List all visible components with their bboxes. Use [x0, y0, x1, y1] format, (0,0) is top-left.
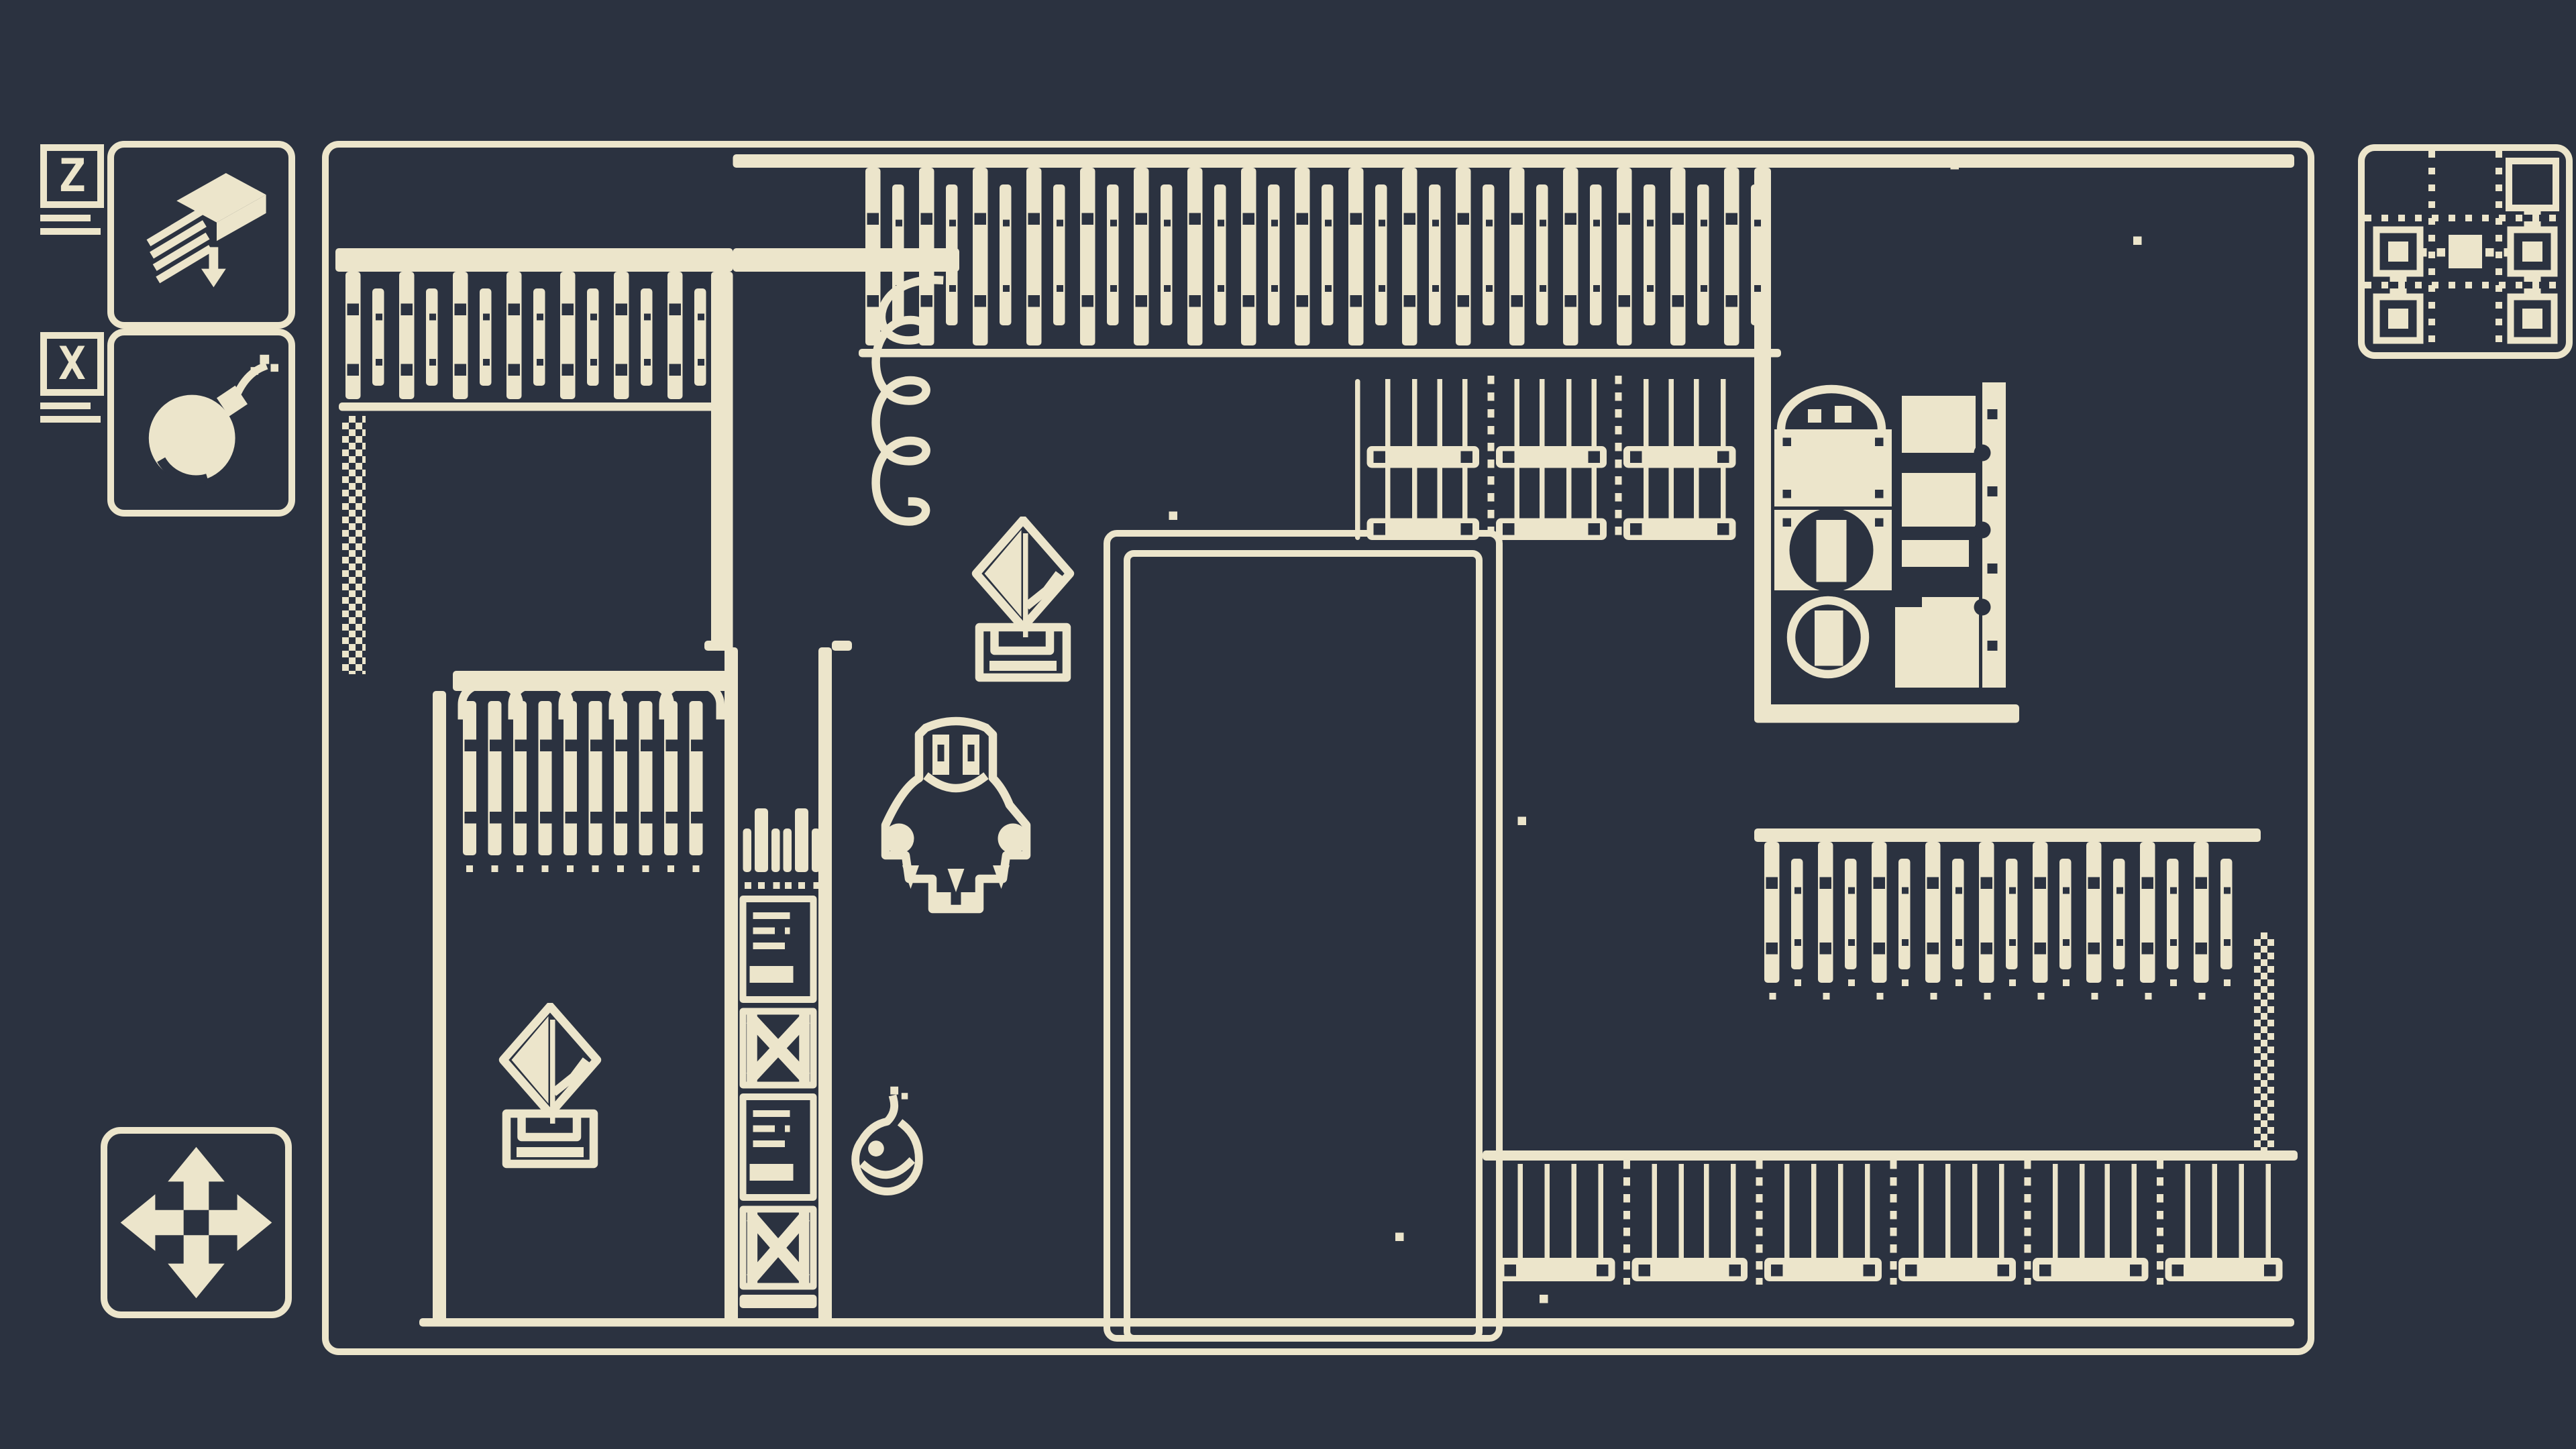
nail-mark [347, 364, 360, 376]
nail-mark [464, 812, 476, 824]
nail-mark [1243, 295, 1255, 307]
plate-shadow-line [40, 402, 91, 409]
nail-mark [1028, 295, 1040, 307]
deck-seam-dotted [1756, 1161, 1763, 1285]
nail-mark [1432, 285, 1438, 292]
deck-plank [2266, 1164, 2271, 1258]
fence-foot [466, 865, 473, 872]
nail-mark [1646, 285, 1653, 292]
fence-slat [560, 272, 576, 399]
fence-slat [1134, 168, 1149, 345]
minimap-room-dot [2522, 241, 2542, 262]
deck-plank [1463, 468, 1468, 519]
nail-mark [514, 812, 526, 824]
fence-foot [1847, 979, 1854, 986]
fence-foot [542, 865, 549, 872]
fence-slat [2086, 842, 2102, 983]
fence-slat [973, 168, 988, 345]
jump-key-label: Z [58, 151, 86, 203]
post [784, 828, 792, 872]
nail-mark [1485, 220, 1492, 227]
nail-mark [975, 213, 987, 225]
deck-plank [1515, 468, 1520, 519]
fence-slat [480, 288, 492, 386]
fence-slat [1536, 184, 1548, 325]
dash-over-block-icon [124, 158, 278, 312]
cap-nail [1997, 1264, 2009, 1276]
fence-slat [1979, 842, 1994, 983]
deck-plank [1592, 468, 1597, 519]
nail-mark [564, 812, 576, 824]
fence-slat [667, 272, 683, 399]
fence-slat [1764, 842, 1780, 983]
nail-mark [564, 740, 576, 752]
fence-slat [2033, 842, 2048, 983]
top-rail [733, 154, 2295, 168]
cap-nail [2264, 1264, 2276, 1276]
nail-mark [1404, 213, 1416, 225]
nail-mark [1378, 220, 1385, 227]
plank-stripe [753, 1110, 790, 1117]
bomb-icon [124, 345, 278, 500]
deck-plank [1678, 1164, 1683, 1258]
nail-mark [640, 740, 652, 752]
door-curl-left [704, 641, 724, 651]
nail-mark [1981, 943, 1993, 955]
deck-cap-bar [1624, 446, 1736, 468]
fence-slat [1483, 184, 1495, 325]
nail-mark [867, 213, 879, 225]
nail-mark [1002, 285, 1009, 292]
nail-mark [1672, 295, 1684, 307]
fence-slat [1456, 168, 1471, 345]
nail-mark [1539, 220, 1546, 227]
nail-mark [1458, 295, 1470, 307]
nail-mark [690, 812, 702, 824]
fence-foot [517, 865, 523, 872]
dither-wall-edge-left [342, 416, 366, 674]
fence-slat [614, 272, 629, 399]
crate-lined [740, 1093, 817, 1201]
deck-seam-dotted [2024, 1161, 2031, 1285]
deck-cap-bar [2032, 1258, 2149, 1281]
cap-nail [1729, 1264, 1741, 1276]
deck-cap-bar [1765, 1258, 1882, 1281]
nail-mark [1271, 220, 1277, 227]
nail-mark [1404, 295, 1416, 307]
post-foot [798, 882, 805, 889]
nail-mark [921, 213, 933, 225]
deck-plank [1731, 1164, 1737, 1258]
post-foot [784, 882, 791, 889]
deck-plank [1972, 1164, 1977, 1258]
deck-plank [1411, 468, 1417, 519]
plank-stripe [753, 943, 790, 949]
nail-mark [1189, 295, 1201, 307]
stripe-gap [786, 1140, 796, 1147]
deck-plank [1669, 379, 1674, 446]
cap-nail [1589, 451, 1601, 464]
nail-mark [2223, 939, 2230, 946]
nail-mark [643, 359, 650, 366]
fence-slat [399, 272, 415, 399]
fence-foot [2090, 993, 2097, 1000]
fence-slat [589, 701, 602, 855]
fence-foot [2037, 993, 2043, 1000]
fence-slat [664, 701, 678, 855]
four-direction-arrows-icon [117, 1144, 275, 1301]
bomb-room-left-wall [433, 691, 446, 1322]
nail-mark [1378, 285, 1385, 292]
nail-mark [1511, 295, 1523, 307]
fence-slat [1026, 168, 1042, 345]
nail-mark [2035, 877, 2047, 890]
fence-slat [539, 701, 552, 855]
fence-slat [1429, 184, 1441, 325]
fence-arch [659, 681, 725, 720]
fence-rail [859, 349, 1781, 358]
fence-slat [1080, 168, 1095, 345]
nail-mark [536, 359, 543, 366]
nail-mark [2142, 943, 2154, 955]
fence-foot [1822, 993, 1829, 1000]
post-foot [744, 882, 751, 889]
post-foot [772, 882, 779, 889]
fence-slat [2167, 859, 2179, 969]
bomb-pickup [849, 1083, 926, 1204]
nail-mark [949, 220, 955, 227]
nail-mark [1901, 888, 1908, 894]
deck-plank [1998, 1164, 2004, 1258]
nail-mark [1700, 285, 1707, 292]
nail-mark [536, 314, 543, 321]
room-a-top-band [335, 248, 733, 272]
cap-nail [1772, 1264, 1784, 1276]
nail-mark [2142, 877, 2154, 890]
crate-shadow-band [750, 1164, 794, 1181]
nail-mark [2008, 939, 2015, 946]
fence-slat [1791, 859, 1803, 969]
fence-slat [1295, 168, 1310, 345]
nail-mark [1110, 285, 1116, 292]
nail-mark [1794, 888, 1801, 894]
fence-foot [2198, 993, 2204, 1000]
nail-mark [429, 314, 435, 321]
nail-mark [455, 364, 467, 376]
fence-foot [1876, 993, 1882, 1000]
fence-foot [1901, 979, 1908, 986]
nail-mark [489, 740, 501, 752]
fence-slat [1214, 184, 1226, 325]
nail-mark [1955, 939, 1962, 946]
fence-slat [1402, 168, 1417, 345]
minimap-grid-line [2365, 215, 2566, 221]
fence-foot [1955, 979, 1962, 986]
fence-foot [567, 865, 574, 872]
bomb-key-label: X [58, 339, 86, 391]
bridge-bottom-right [1493, 1164, 2294, 1281]
cap-nail [1502, 523, 1514, 535]
fence-slat [2006, 859, 2018, 969]
fence-slat [587, 288, 599, 386]
nail-mark [1766, 877, 1778, 890]
nail-mark [1619, 295, 1631, 307]
deck-platform-top [1362, 379, 1748, 540]
deck-seam-dotted [1623, 1161, 1629, 1285]
nail-mark [1726, 213, 1738, 225]
nail-mark [1955, 888, 1962, 894]
cap-nail [1589, 523, 1601, 535]
nail-mark [2116, 888, 2123, 894]
nail-mark [614, 740, 627, 752]
cap-nail [1460, 451, 1472, 464]
minimap-door-dots [2437, 248, 2446, 257]
deck-cap-bar [1498, 1258, 1615, 1281]
nail-mark [1847, 888, 1854, 894]
central-room-inner [1124, 550, 1483, 1342]
deck-plank [1438, 468, 1443, 519]
fence-foot [643, 865, 649, 872]
nail-mark [895, 220, 902, 227]
deck-plank [1515, 379, 1520, 446]
post [771, 828, 780, 872]
fence-slat [563, 701, 577, 855]
deck-plank [2079, 1164, 2084, 1258]
nail-mark [1901, 939, 1908, 946]
fence-slat [513, 701, 527, 855]
nail-mark [375, 359, 382, 366]
fence-foot [2144, 993, 2151, 1000]
nail-mark [949, 285, 955, 292]
deck-cap-bar [1367, 519, 1479, 541]
nail-mark [2088, 877, 2100, 890]
cap-nail [1631, 523, 1643, 535]
move-pad[interactable] [101, 1127, 292, 1318]
fence-foot [492, 865, 498, 872]
fence-slat [453, 272, 468, 399]
deck-seam-dotted [1890, 1161, 1897, 1285]
deck-plank [1669, 468, 1674, 519]
nail-mark [1324, 220, 1331, 227]
nail-mark [1110, 220, 1116, 227]
fence-foot [2008, 979, 2015, 986]
nail-mark [1981, 877, 1993, 890]
nail-mark [1350, 213, 1362, 225]
nail-mark [1766, 943, 1778, 955]
jump-button[interactable] [107, 141, 295, 329]
fence-slat [1925, 842, 1941, 983]
debris-speck [1518, 817, 1527, 826]
plate-shadow-line [40, 228, 101, 235]
crate-channel-left-wall [724, 647, 738, 1322]
fence-slat [533, 288, 545, 386]
fence-slat [372, 288, 384, 386]
nail-mark [1163, 220, 1170, 227]
deck-plank [1571, 1164, 1576, 1258]
cap-nail [2172, 1264, 2184, 1276]
fence-slat [2194, 842, 2209, 983]
fence-foot [1983, 993, 1990, 1000]
deck-cap-bar [1367, 446, 1479, 468]
deck-seam-dotted [1487, 376, 1494, 543]
fence-slat [694, 288, 706, 386]
nail-mark [640, 812, 652, 824]
plate-shadow-line [40, 215, 91, 221]
nail-mark [2062, 888, 2069, 894]
deck-cap-bar [1624, 519, 1736, 541]
nail-mark [1794, 939, 1801, 946]
nail-mark [1539, 285, 1546, 292]
nail-mark [1565, 295, 1577, 307]
fence-slat [1375, 184, 1387, 325]
deck-cap-bar [1495, 446, 1607, 468]
nail-mark [697, 314, 704, 321]
nail-mark [1847, 939, 1854, 946]
post-foot [812, 882, 819, 889]
nail-mark [590, 359, 596, 366]
nail-mark [1189, 213, 1201, 225]
deck-cap-bar [1631, 1258, 1748, 1281]
deck-plank [1438, 379, 1443, 446]
deck-left-edge [1355, 379, 1360, 540]
fence-slat [1952, 859, 1964, 969]
debris-speck [1169, 512, 1178, 521]
deck-plank [1540, 468, 1546, 519]
fence-slat [1872, 842, 1887, 983]
fence-arched-bomb-room [456, 681, 714, 885]
minimap-room-dot [2388, 241, 2408, 262]
fence-slat [1724, 168, 1739, 345]
minimap-door-dots [2485, 248, 2494, 257]
fence-slat [1751, 184, 1763, 325]
nail-mark [2008, 888, 2015, 894]
nail-mark [1672, 213, 1684, 225]
fence-slat [1053, 184, 1065, 325]
fence-slat [1107, 184, 1119, 325]
minimap-room-current [2449, 235, 2482, 268]
nail-mark [1927, 877, 1939, 890]
nail-mark [2196, 943, 2208, 955]
inner-bottom-wall [419, 1318, 2294, 1327]
deck-plank [1651, 1164, 1656, 1258]
nail-mark [464, 740, 476, 752]
bomb-button[interactable] [107, 329, 295, 517]
nail-mark [669, 364, 682, 376]
cap-nail [1631, 451, 1643, 464]
fence-top-long [859, 168, 1781, 379]
crate-crossed [740, 1206, 817, 1290]
cap-nail [1717, 523, 1729, 535]
cap-nail [1638, 1264, 1650, 1276]
post [743, 828, 752, 872]
bomb-key-plate: X [40, 332, 104, 396]
minimap-room-dot [2388, 309, 2408, 329]
game-scene [0, 0, 2576, 1449]
debris-speck [1951, 161, 1960, 170]
machine-contraption [1771, 382, 2006, 691]
fence-foot [2062, 979, 2069, 986]
fence-foot [667, 865, 674, 872]
fence-slat [639, 701, 653, 855]
cap-nail [1374, 451, 1386, 464]
fence-slat [1818, 842, 1833, 983]
deck-plank [1592, 379, 1597, 446]
deck-plank [1517, 1164, 1523, 1258]
nail-mark [2169, 939, 2176, 946]
fence-slat [1241, 168, 1256, 345]
bridge-top-rail [1483, 1150, 2298, 1161]
deck-plank [1919, 1164, 1924, 1258]
nail-mark [669, 304, 682, 316]
jump-key-plate: Z [40, 144, 104, 208]
crate-stack-base [740, 1295, 817, 1308]
nail-mark [643, 314, 650, 321]
nail-mark [1458, 213, 1470, 225]
deck-plank [1643, 379, 1648, 446]
deck-plank [1720, 379, 1725, 446]
nail-mark [1874, 943, 1886, 955]
nail-mark [1271, 285, 1277, 292]
nail-mark [1593, 220, 1599, 227]
post-foot [758, 882, 765, 889]
fence-slat [1644, 184, 1656, 325]
spring-coil [859, 274, 946, 555]
cap-nail [1505, 1264, 1517, 1276]
nail-mark [508, 364, 521, 376]
deck-plank [1386, 468, 1391, 519]
deck-plank [1695, 468, 1700, 519]
nail-mark [562, 364, 574, 376]
fence-slat [426, 288, 438, 386]
minimap-chain-link [2524, 221, 2541, 231]
fence-slat [1000, 184, 1012, 325]
debris-speck [2133, 237, 2142, 246]
fence-slat [463, 701, 476, 855]
stripe-gap [786, 943, 796, 949]
nail-mark [347, 304, 360, 316]
fence-slat [2059, 859, 2072, 969]
deck-plank [1598, 1164, 1603, 1258]
deck-plank [1705, 1164, 1710, 1258]
door-curl-right [832, 641, 852, 651]
fence-slat [946, 184, 958, 325]
crate-x-brace [747, 1213, 810, 1283]
minimap-chain-link [2524, 288, 2541, 299]
nail-mark [1350, 295, 1362, 307]
fence-slat [488, 701, 502, 855]
minimap-grid-line [2428, 151, 2435, 352]
save-crystal [969, 517, 1077, 684]
channel-fence-posts [743, 792, 844, 892]
deck-plank [1720, 468, 1725, 519]
nail-mark [514, 740, 526, 752]
nail-mark [697, 359, 704, 366]
fence-foot [617, 865, 624, 872]
plank-stripe [753, 928, 790, 934]
plank-stripe [753, 1140, 790, 1147]
nail-mark [508, 304, 521, 316]
deck-plank [2106, 1164, 2111, 1258]
fence-right-middle [1758, 842, 2261, 1016]
minimap-grid-line [2495, 151, 2502, 352]
fence-slat [1670, 168, 1686, 345]
fence-slat [1348, 168, 1364, 345]
nail-mark [975, 295, 987, 307]
crate-lined [740, 896, 817, 1003]
nail-mark [1485, 285, 1492, 292]
deck-seam-dotted [1615, 376, 1622, 543]
deck-plank [2052, 1164, 2057, 1258]
